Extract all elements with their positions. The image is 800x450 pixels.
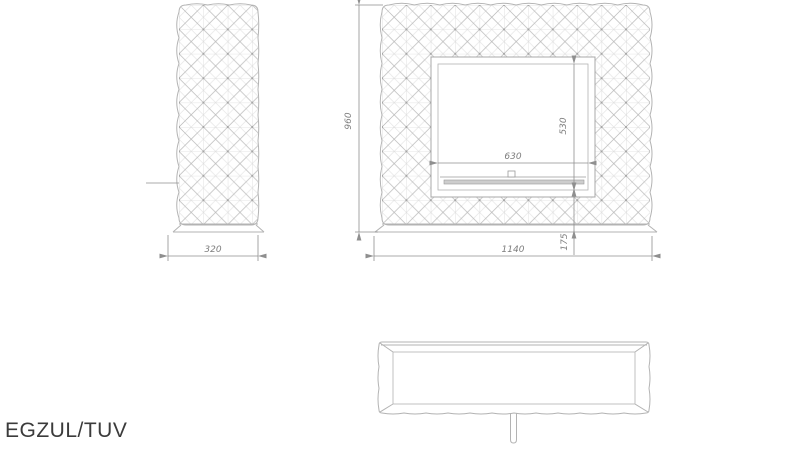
burner-strip [444, 180, 584, 184]
width-dimension-label: 1140 [502, 245, 525, 255]
side-quilt-pattern [179, 5, 258, 225]
burner-knob [508, 171, 515, 177]
height-dimension: 960 [344, 5, 383, 232]
top-view [378, 342, 650, 443]
drawing-title: EGZUL/TUV [5, 419, 127, 443]
side-view: 320 [146, 4, 264, 261]
drawing-canvas: 320 960 1140 630 [0, 0, 800, 450]
width-dimension: 1140 [374, 236, 652, 261]
drawing-sheet: 320 960 1140 630 [0, 0, 800, 450]
depth-dimension-label: 320 [204, 245, 221, 255]
top-view-corner-bevels [380, 343, 648, 412]
gas-pipe-stem [511, 413, 517, 443]
top-view-inner-face [393, 352, 635, 404]
height-dimension-label: 960 [344, 112, 354, 129]
top-view-outline [378, 342, 650, 414]
depth-dimension: 320 [168, 235, 258, 261]
front-view: 960 1140 630 530 175 [344, 3, 657, 261]
base-height-dimension-label: 175 [560, 233, 570, 250]
opening-height-dimension-label: 530 [559, 117, 569, 134]
opening-width-dimension-label: 630 [504, 152, 521, 162]
